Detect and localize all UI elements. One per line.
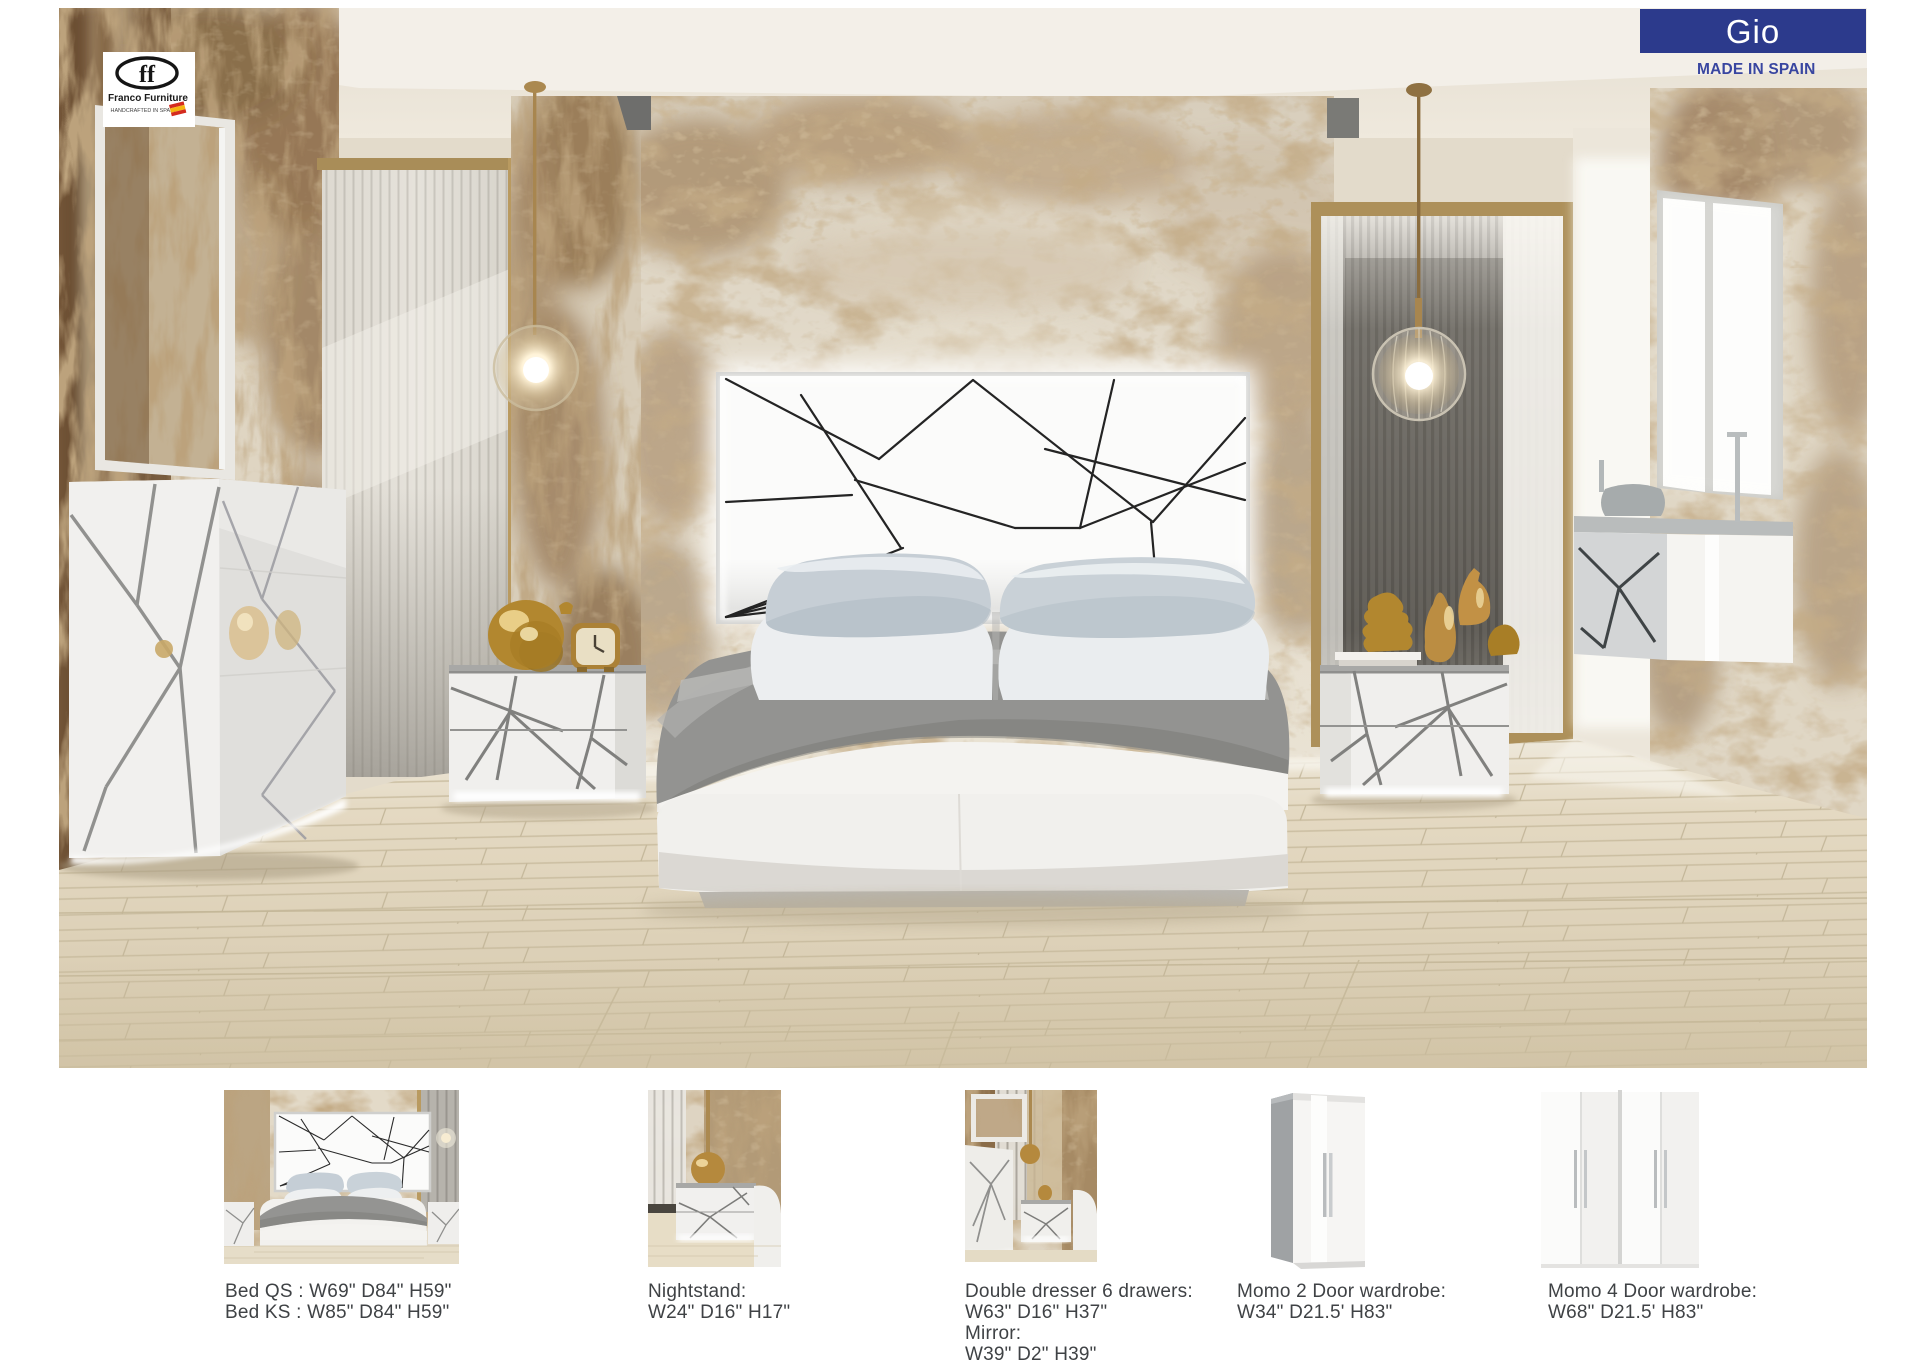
svg-text:Franco Furniture: Franco Furniture — [108, 93, 188, 104]
svg-text:ff: ff — [139, 62, 156, 88]
svg-text:HANDCRAFTED IN SPAIN: HANDCRAFTED IN SPAIN — [111, 108, 176, 114]
